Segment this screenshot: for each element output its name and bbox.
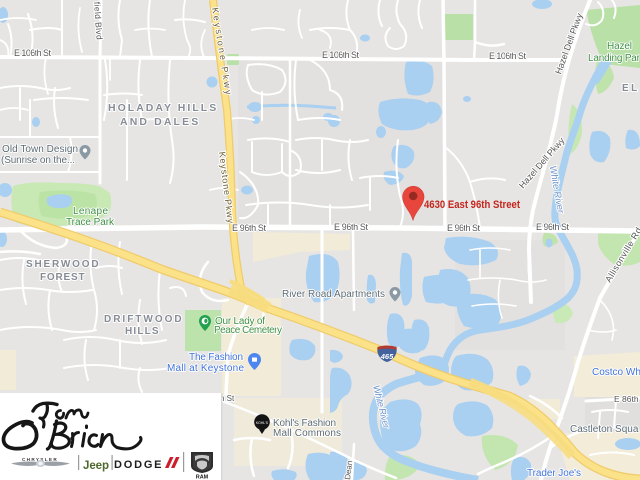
- svg-text:Hazel: Hazel: [607, 41, 632, 52]
- svg-text:Trader Joe's: Trader Joe's: [527, 468, 581, 479]
- svg-text:4630 East 96th Street: 4630 East 96th Street: [424, 199, 520, 211]
- svg-text:RAM: RAM: [196, 475, 209, 480]
- svg-text:HILLS: HILLS: [125, 326, 161, 337]
- svg-text:Costco Wh: Costco Wh: [592, 367, 640, 378]
- svg-text:Old Town Design: Old Town Design: [2, 144, 78, 155]
- svg-text:E 106th St: E 106th St: [14, 48, 51, 58]
- svg-text:AND DALES: AND DALES: [120, 116, 201, 128]
- svg-text:E 96th St: E 96th St: [334, 222, 368, 232]
- svg-text:DRIFTWOOD: DRIFTWOOD: [104, 314, 184, 325]
- svg-text:DODGE: DODGE: [114, 459, 162, 471]
- svg-text:E 106th St: E 106th St: [489, 51, 526, 61]
- svg-text:Mall at Keystone: Mall at Keystone: [167, 363, 244, 374]
- svg-text:E 106th St: E 106th St: [322, 50, 359, 60]
- svg-text:(Sunrise on the...: (Sunrise on the...: [1, 155, 75, 166]
- svg-text:The Fashion: The Fashion: [189, 352, 243, 363]
- svg-text:Castleton Squa: Castleton Squa: [570, 424, 639, 435]
- svg-text:Mall Commons: Mall Commons: [273, 428, 341, 439]
- svg-text:Jeep: Jeep: [83, 460, 109, 472]
- svg-text:HOLADAY HILLS: HOLADAY HILLS: [108, 102, 219, 114]
- svg-text:Landing Par: Landing Par: [588, 53, 640, 64]
- svg-text:Peace Cemetery: Peace Cemetery: [214, 325, 282, 336]
- svg-text:E 96th St: E 96th St: [536, 222, 569, 232]
- svg-text:KOHL'S: KOHL'S: [256, 421, 269, 425]
- svg-text:E 96th St: E 96th St: [447, 223, 480, 233]
- svg-text:SHERWOOD: SHERWOOD: [26, 259, 101, 270]
- svg-text:FOREST: FOREST: [40, 272, 87, 283]
- svg-text:Lenape: Lenape: [73, 206, 108, 217]
- svg-text:E 86th: E 86th: [614, 394, 639, 404]
- svg-text:EL: EL: [622, 83, 640, 94]
- svg-text:River Road Apartments: River Road Apartments: [282, 289, 385, 300]
- svg-text:E 96th St: E 96th St: [232, 223, 266, 233]
- svg-text:465: 465: [380, 352, 394, 361]
- svg-text:Trace Park: Trace Park: [66, 217, 115, 228]
